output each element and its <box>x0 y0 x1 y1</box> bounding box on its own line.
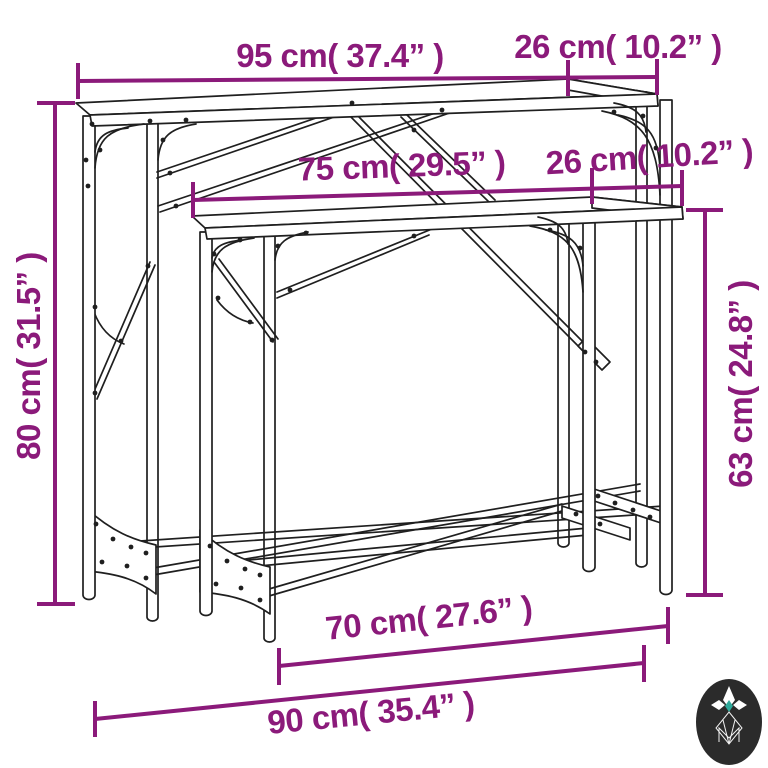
dim-line-middle <box>193 186 682 200</box>
cross-braces <box>92 99 610 399</box>
brand-monogram-logo <box>696 679 762 765</box>
large-tabletop <box>76 79 658 126</box>
dim-small-height: 63 cm( 24.8” ) <box>686 210 759 595</box>
dimension-diagram: 95 cm( 37.4” ) 26 cm( 10.2” ) 75 cm( 29.… <box>0 0 768 768</box>
dim-floor-span-inner: 70 cm( 27.6” ) <box>279 588 668 685</box>
large-table-depth-label: 26 cm( 10.2” ) <box>514 28 722 65</box>
small-table-depth-label: 26 cm( 10.2” ) <box>545 132 754 182</box>
large-table-width-label: 95 cm( 37.4” ) <box>236 37 444 74</box>
diagram-canvas: 95 cm( 37.4” ) 26 cm( 10.2” ) 75 cm( 29.… <box>0 0 768 768</box>
small-table-width-label: 75 cm( 29.5” ) <box>297 143 506 187</box>
dim-large-height: 80 cm( 31.5” ) <box>10 103 75 604</box>
large-table-height-label: 80 cm( 31.5” ) <box>10 252 47 460</box>
dim-floor-span-outer: 90 cm( 35.4” ) <box>95 645 644 741</box>
floor-span-inner-label: 70 cm( 27.6” ) <box>324 588 534 647</box>
stretcher-rails <box>86 484 664 614</box>
small-table-height-label: 63 cm( 24.8” ) <box>722 280 759 488</box>
